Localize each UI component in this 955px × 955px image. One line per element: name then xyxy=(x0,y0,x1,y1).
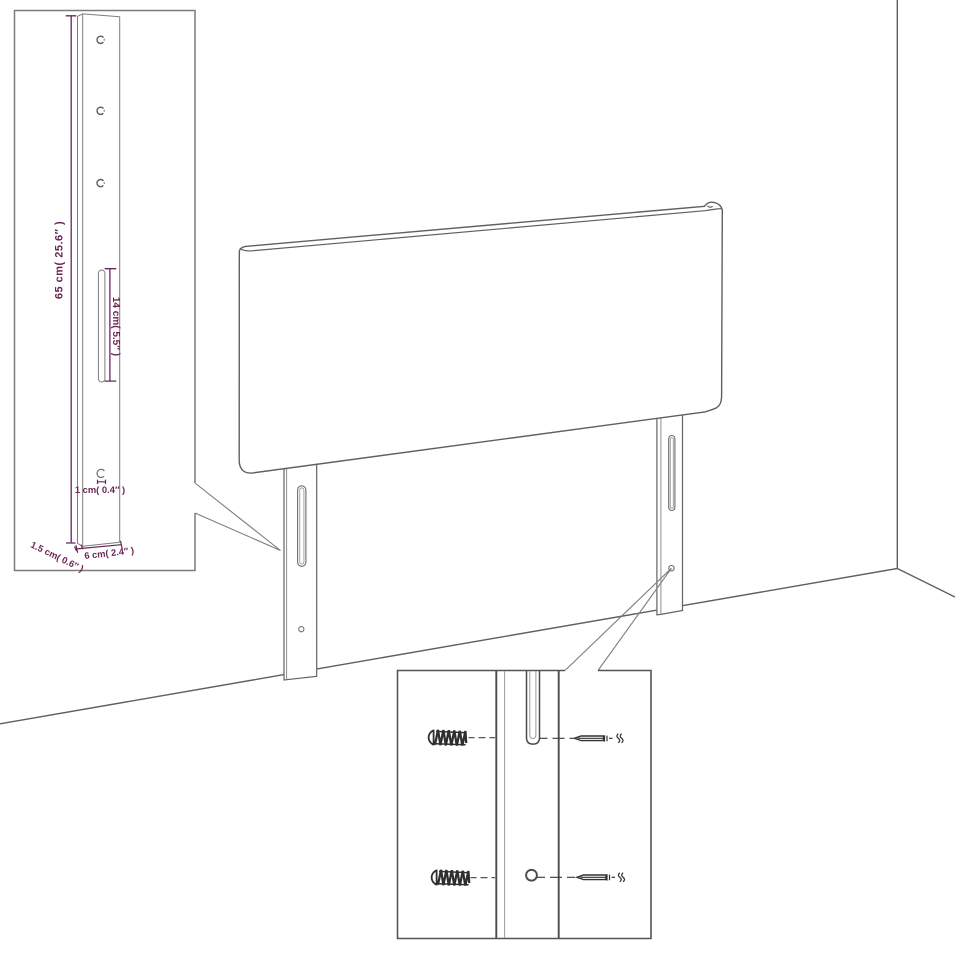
svg-text:65 cm( 25.6″ ): 65 cm( 25.6″ ) xyxy=(54,221,66,299)
svg-text:1 cm( 0.4″ ): 1 cm( 0.4″ ) xyxy=(75,484,125,495)
svg-text:14 cm( 5.5″ ): 14 cm( 5.5″ ) xyxy=(110,297,121,356)
